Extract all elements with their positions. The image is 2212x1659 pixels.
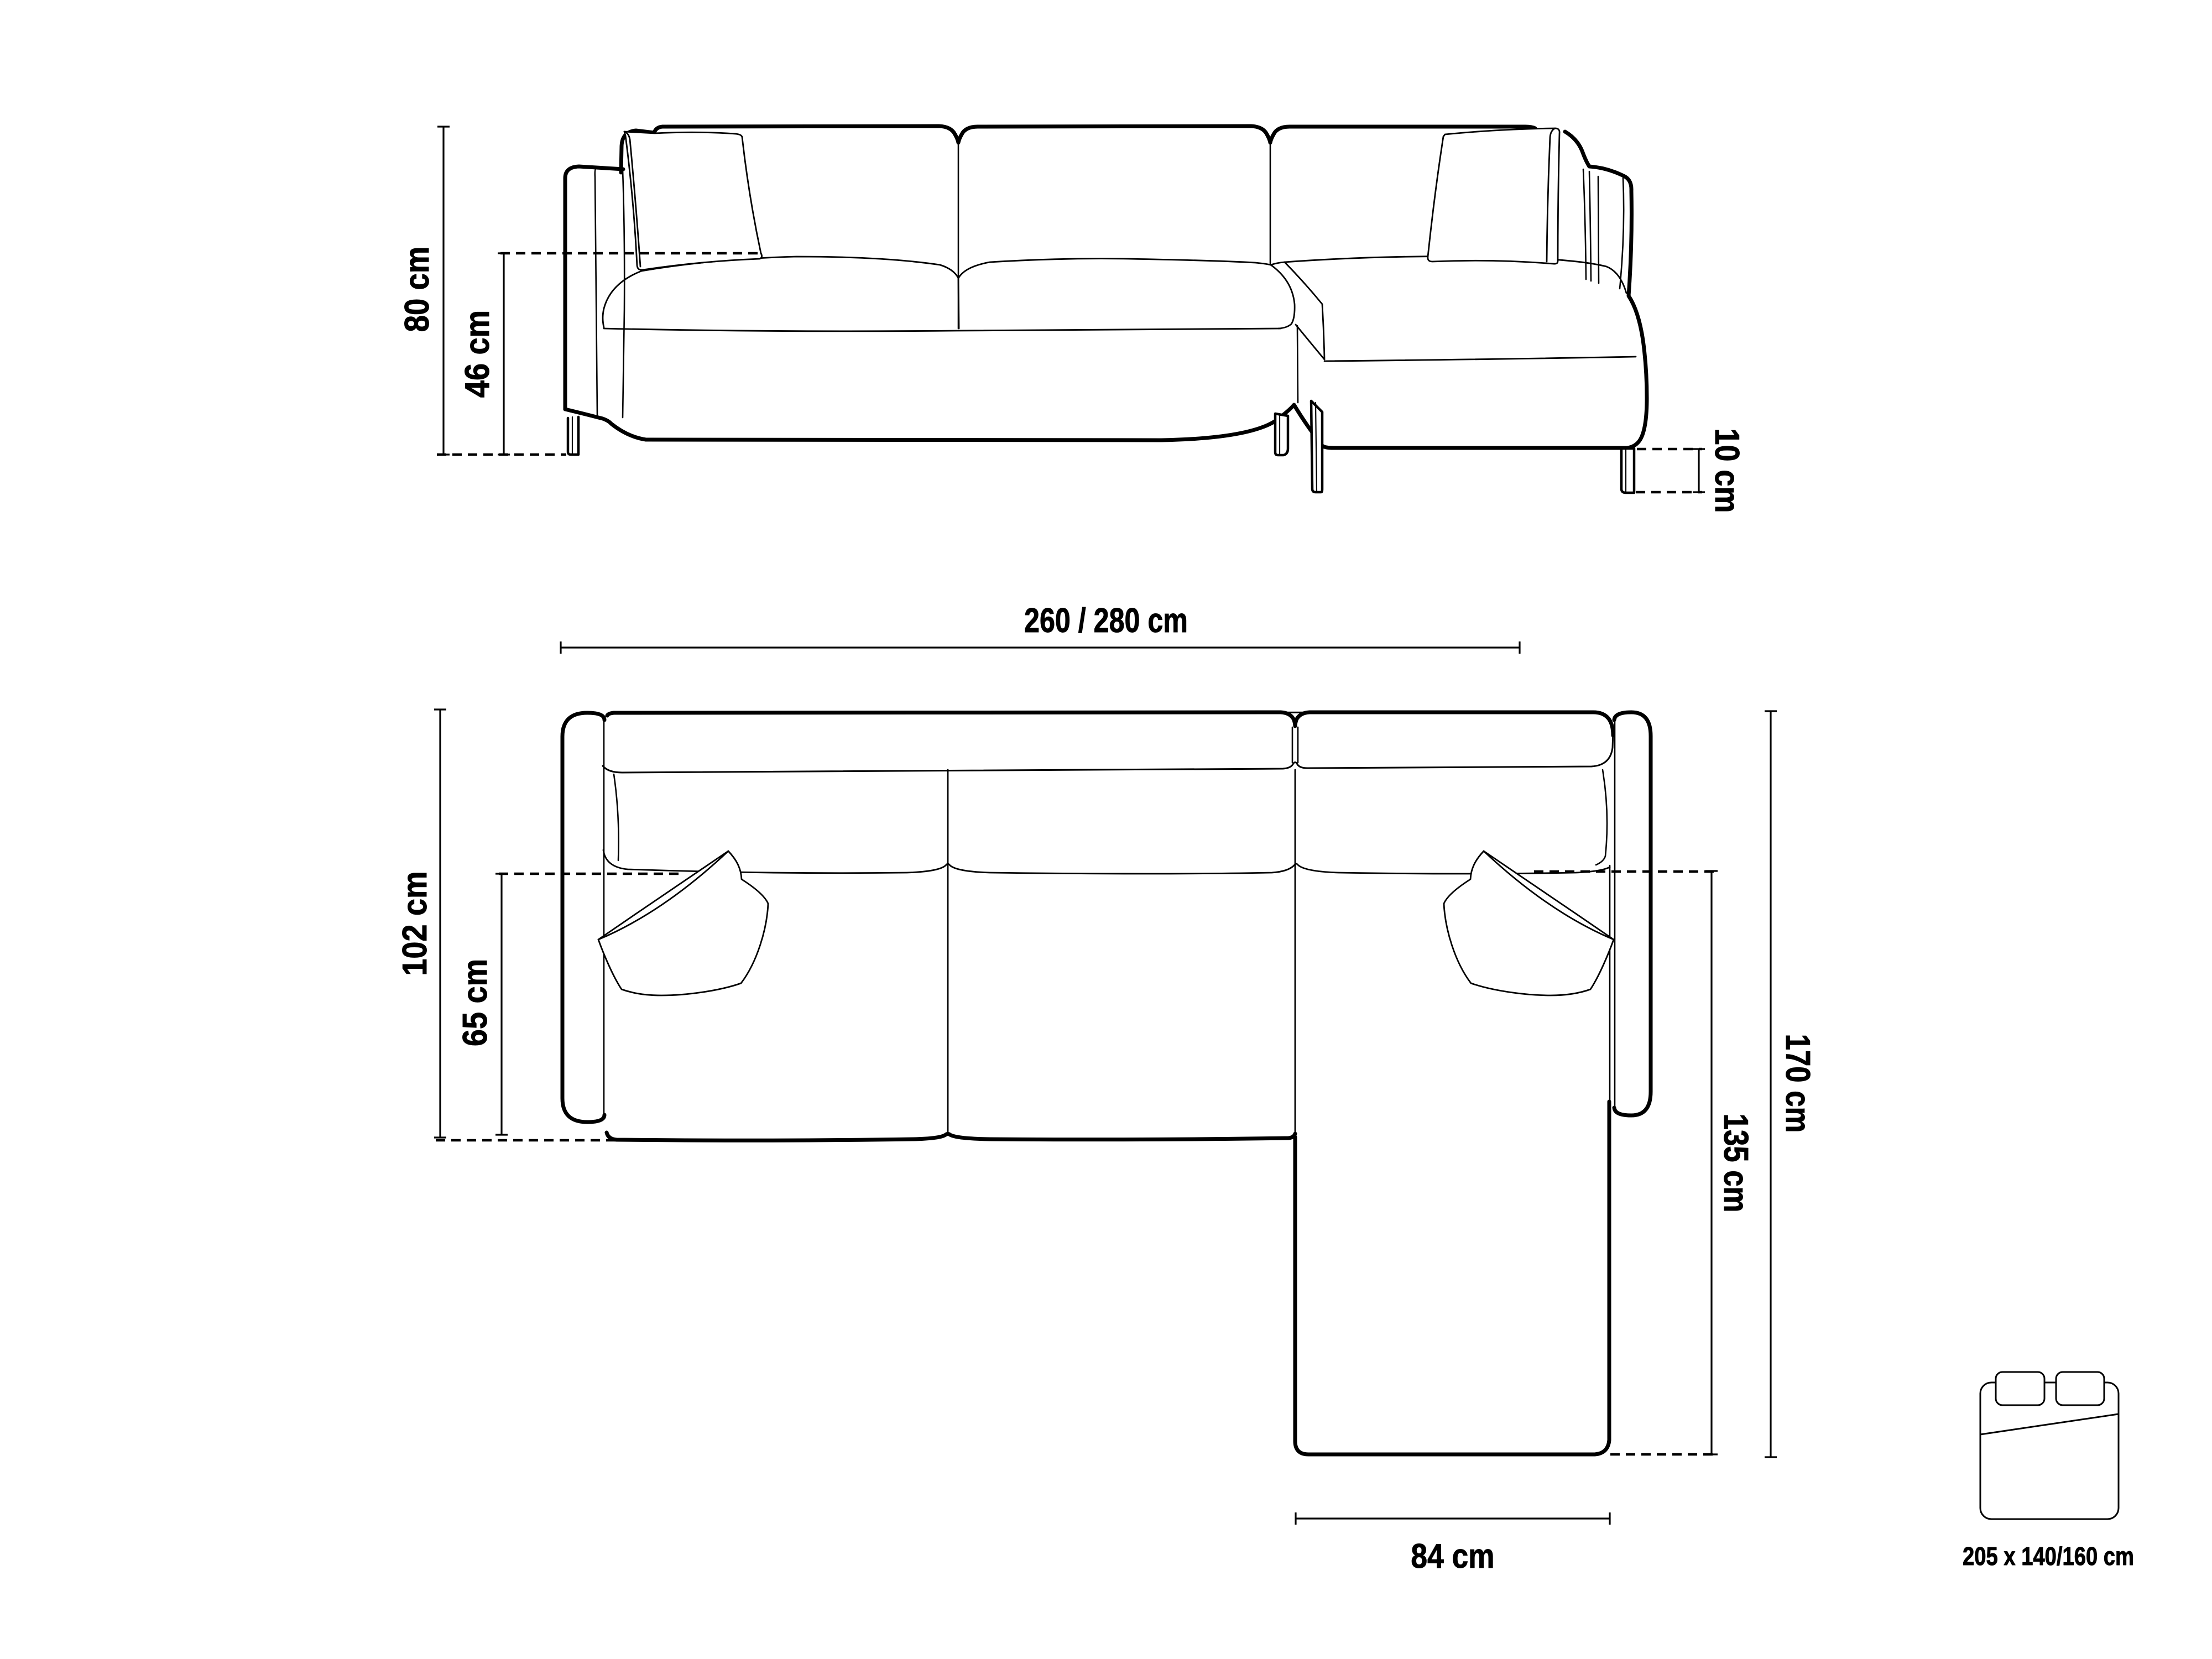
svg-text:170 cm: 170 cm <box>1778 1034 1817 1133</box>
svg-text:84 cm: 84 cm <box>1411 1537 1494 1575</box>
svg-text:205 x 140/160 cm: 205 x 140/160 cm <box>1963 1542 2134 1571</box>
svg-text:260 / 280 cm: 260 / 280 cm <box>1024 601 1188 639</box>
svg-text:46 cm: 46 cm <box>458 310 496 398</box>
svg-text:102 cm: 102 cm <box>396 871 434 975</box>
svg-text:65 cm: 65 cm <box>456 959 494 1046</box>
svg-text:135 cm: 135 cm <box>1717 1114 1755 1213</box>
svg-text:80 cm: 80 cm <box>398 247 436 332</box>
svg-text:10 cm: 10 cm <box>1708 429 1746 513</box>
